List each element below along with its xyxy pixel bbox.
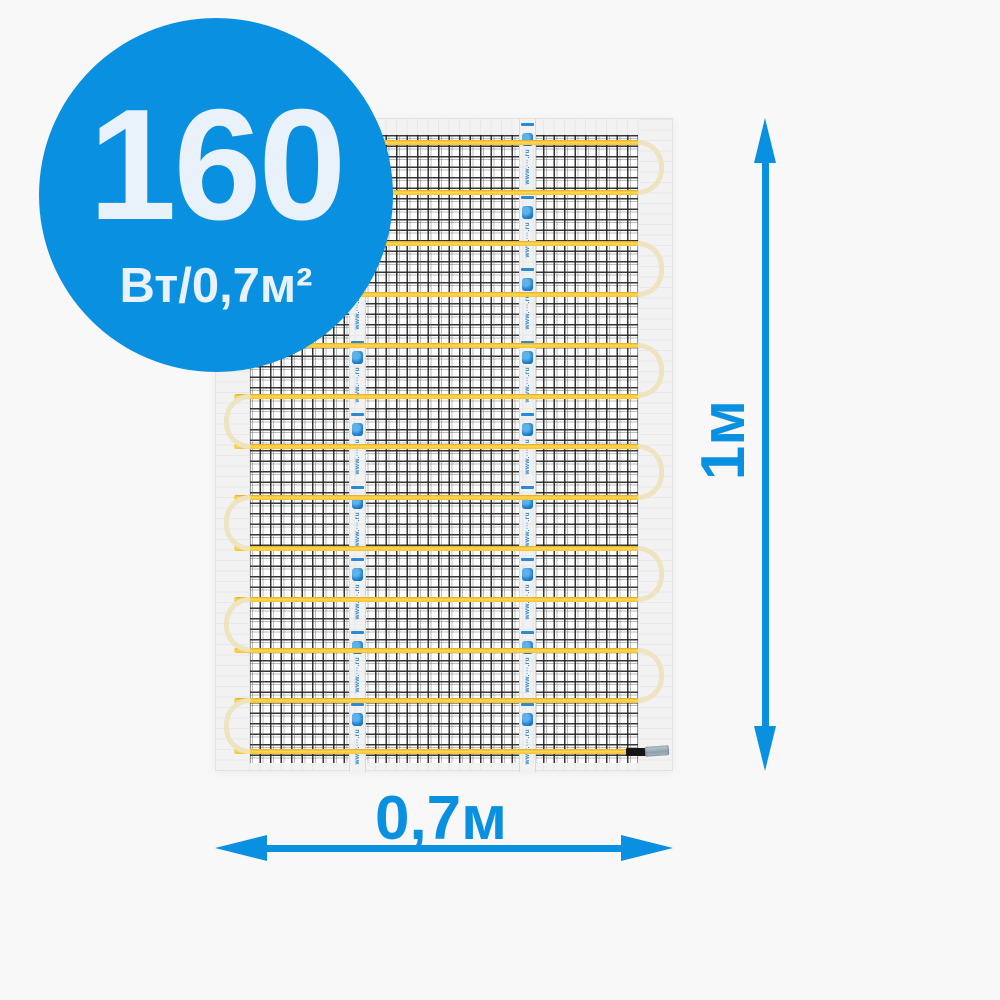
tape-brand-logo-icon [522,351,533,364]
width-arrow-head-right [621,835,673,861]
tape-dash-mark [521,413,534,416]
heating-cable-run [234,648,640,653]
tape-brand-logo-icon [352,351,363,364]
heating-cable-run [234,394,640,399]
tape-url-text: www.···.ru [354,512,362,548]
tape-segment: www.···.ru [519,264,536,337]
power-unit: Вт/0,7м² [119,262,312,311]
power-value: 160 [89,86,344,244]
tape-url-text: www.···.ru [524,512,532,548]
height-arrow-head-bottom [754,726,776,771]
tape-url-text: www.···.ru [524,729,532,765]
tape-dash-mark [351,703,364,706]
product-image-canvas: www.···.ruwww.···.ruwww.···.ruwww.···.ru… [0,0,1000,1000]
tape-brand-logo-icon [352,423,363,436]
tape-brand-logo-icon [522,423,533,436]
tape-dash-mark [351,631,364,634]
width-arrow-head-left [215,835,267,861]
tape-segment: www.···.ru [349,699,366,772]
tape-segment: www.···.ru [519,192,536,265]
tape-segment: www.···.ru [349,554,366,627]
tape-dash-mark [521,486,534,489]
tape-segment: www.···.ru [519,482,536,555]
tape-dash-mark [351,486,364,489]
heating-cable-run [234,597,640,602]
cable-end-crimp-connector [645,745,670,757]
tape-url-text: www.···.ru [354,584,362,620]
power-badge: 160 Вт/0,7м² [39,18,393,372]
tape-url-text: www.···.ru [354,729,362,765]
heating-cable-run [234,749,628,754]
tape-dash-mark [521,268,534,271]
tape-dash-mark [521,558,534,561]
tape-segment: www.···.ru [519,627,536,700]
tape-segment: www.···.ru [519,699,536,772]
tape-brand-logo-icon [522,568,533,581]
tape-brand-logo-icon [522,713,533,726]
tape-url-text: www.···.ru [524,294,532,330]
cable-end-sleeve [626,748,646,756]
tape-brand-logo-icon [522,278,533,291]
height-arrow-head-top [754,118,776,163]
tape-brand-logo-icon [352,713,363,726]
tape-url-text: www.···.ru [524,222,532,258]
tape-dash-mark [351,413,364,416]
heating-cable-run [234,698,640,703]
tape-segment: www.···.ru [519,554,536,627]
tape-url-text: www.···.ru [354,657,362,693]
heating-cable-run [234,546,640,551]
tape-dash-mark [521,631,534,634]
tape-dash-mark [521,196,534,199]
tape-brand-logo-icon [352,568,363,581]
tape-segment: www.···.ru [349,627,366,700]
width-dimension-label: 0,7м [316,783,566,854]
heating-cable-run [234,495,640,500]
tape-segment: www.···.ru [349,482,366,555]
tape-url-text: www.···.ru [524,657,532,693]
heating-cable-run [234,444,640,449]
tape-url-text: www.···.ru [524,149,532,185]
height-dimension-label: 1м [663,365,783,515]
tape-segment: www.···.ru [519,119,536,192]
tape-dash-mark [521,703,534,706]
tape-url-text: www.···.ru [524,584,532,620]
tape-dash-mark [521,123,534,126]
tape-brand-logo-icon [522,206,533,219]
tape-dash-mark [351,558,364,561]
mat-margin-bottom [249,763,641,770]
